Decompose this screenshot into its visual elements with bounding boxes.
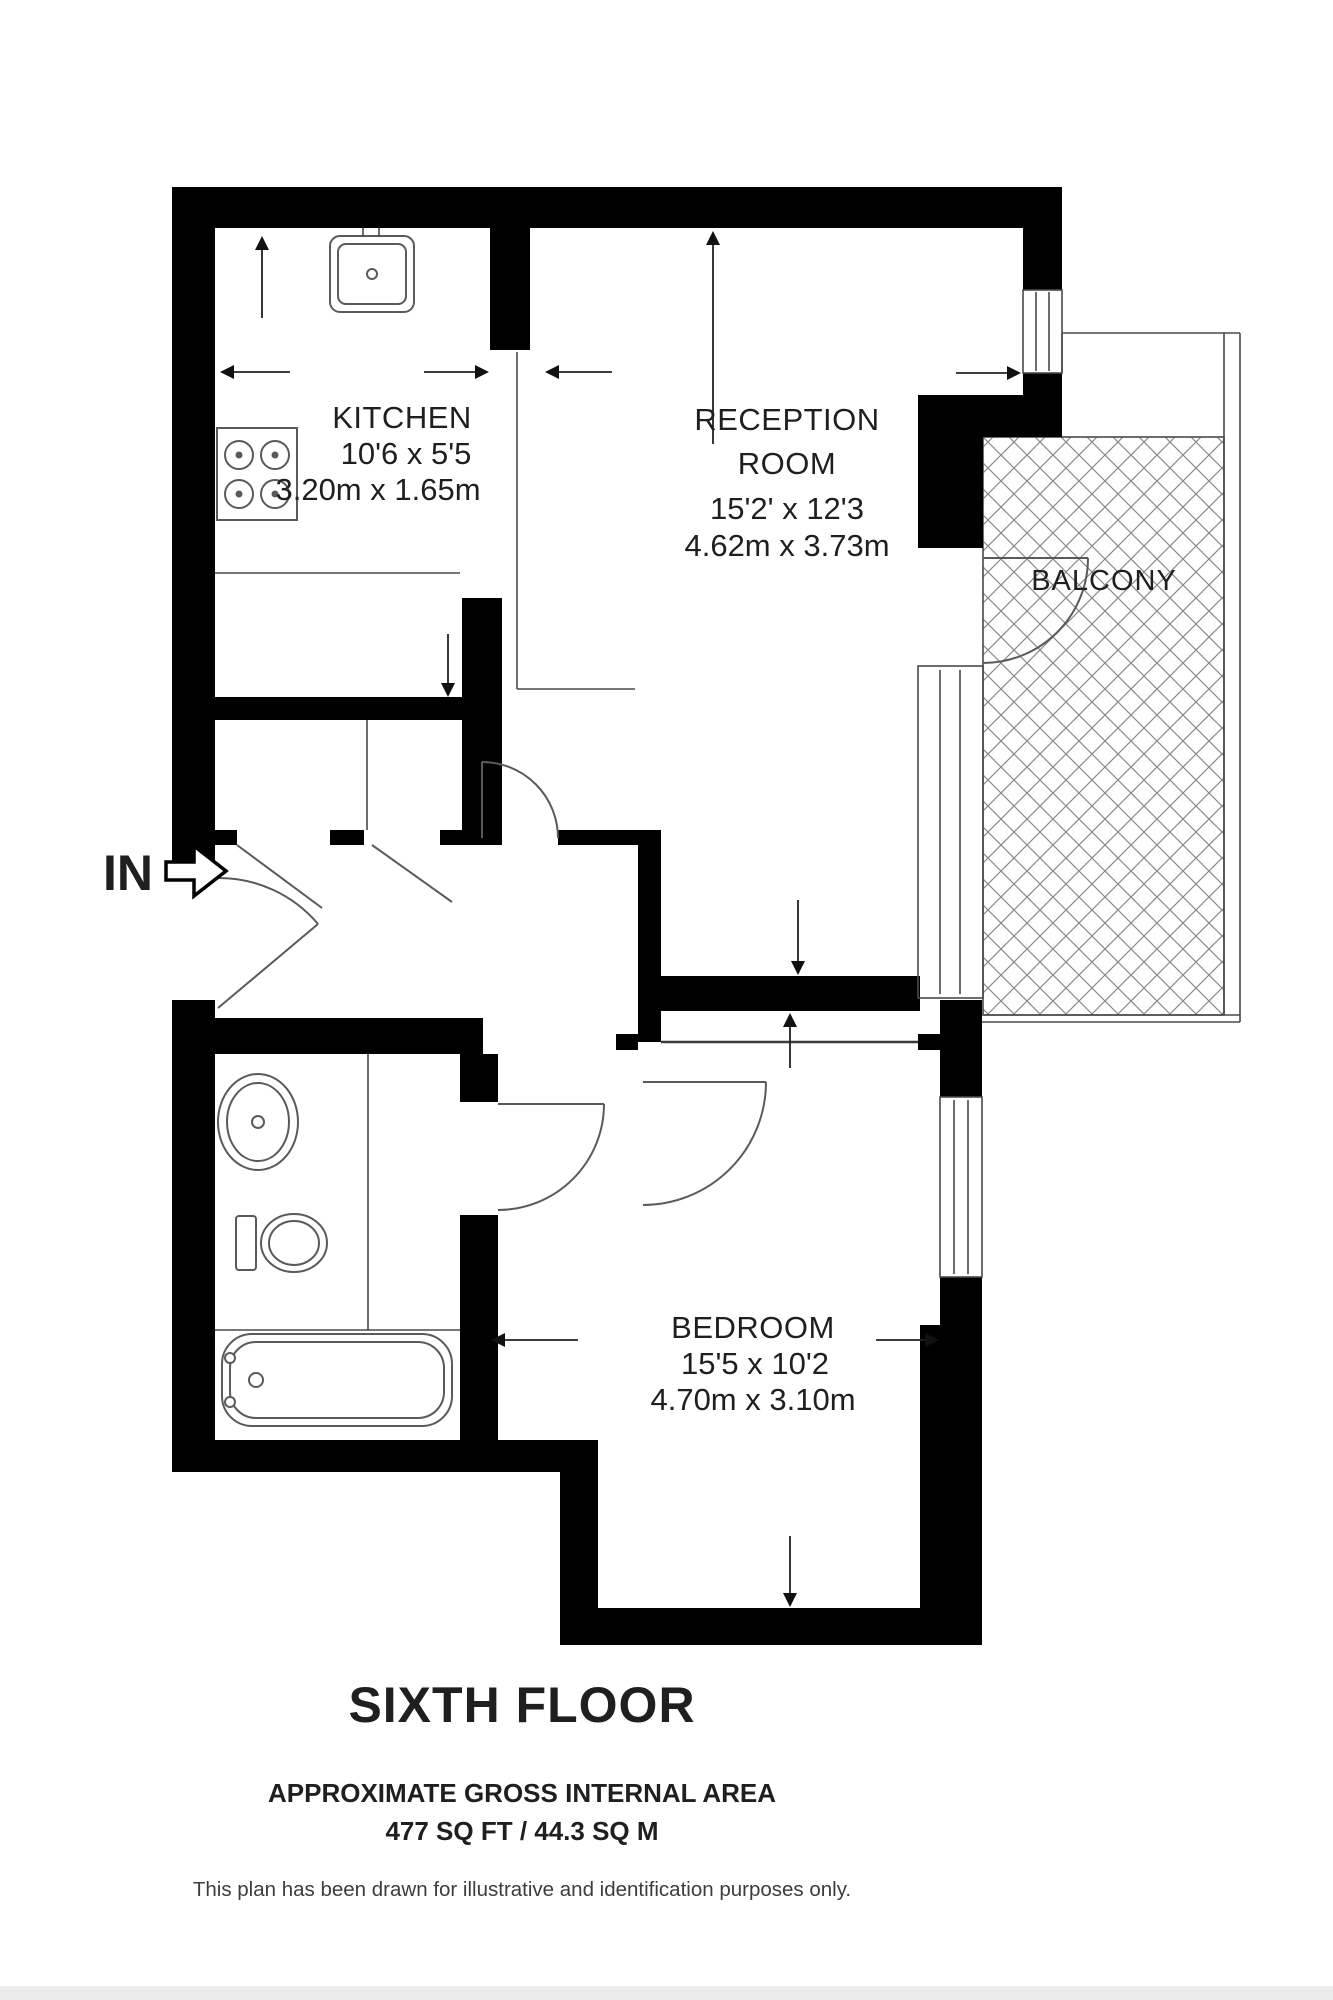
bathtub — [222, 1334, 452, 1426]
kitchen-label-group: KITCHEN 10'6 x 5'5 3.20m x 1.65m — [275, 400, 480, 507]
bathroom-door-swing — [498, 1104, 604, 1210]
window-reception-right — [1023, 290, 1062, 373]
reception-imperial: 15'2' x 12'3 — [710, 491, 864, 526]
reception-label-line2: ROOM — [738, 446, 836, 481]
toilet — [236, 1214, 327, 1272]
entrance-label: IN — [103, 845, 153, 901]
bedroom-metric: 4.70m x 3.10m — [650, 1382, 855, 1417]
reception-label-line1: RECEPTION — [694, 402, 879, 437]
closet-doors — [237, 720, 452, 908]
window-reception-balcony — [918, 666, 983, 998]
reception-metric: 4.62m x 3.73m — [684, 528, 889, 563]
footer-strip — [0, 1986, 1333, 2000]
floorplan-page: IN KITCHEN 10'6 x 5'5 3.20m x 1.65m RECE… — [0, 0, 1333, 2000]
kitchen-label: KITCHEN — [332, 400, 472, 435]
floorplan-drawing: IN KITCHEN 10'6 x 5'5 3.20m x 1.65m RECE… — [0, 0, 1333, 2000]
reception-label-group: RECEPTION ROOM 15'2' x 12'3 4.62m x 3.73… — [684, 402, 889, 563]
bedroom-door-swing — [643, 1082, 766, 1205]
bedroom-imperial: 15'5 x 10'2 — [681, 1346, 829, 1381]
area-value: 477 SQ FT / 44.3 SQ M — [385, 1816, 658, 1846]
floor-title: SIXTH FLOOR — [348, 1677, 695, 1733]
washbasin — [218, 1074, 298, 1170]
bedroom-label-group: BEDROOM 15'5 x 10'2 4.70m x 3.10m — [650, 1310, 855, 1417]
balcony-label: BALCONY — [1031, 565, 1177, 597]
entrance-door-swing — [218, 878, 318, 1008]
bedroom-label: BEDROOM — [671, 1310, 835, 1345]
kitchen-sink — [330, 228, 414, 312]
kitchen-metric: 3.20m x 1.65m — [275, 472, 480, 507]
area-heading: APPROXIMATE GROSS INTERNAL AREA — [268, 1778, 776, 1808]
window-bedroom — [940, 1097, 982, 1277]
kitchen-imperial: 10'6 x 5'5 — [341, 436, 472, 471]
balcony-hatch — [983, 437, 1224, 1015]
disclaimer-text: This plan has been drawn for illustrativ… — [193, 1878, 851, 1901]
